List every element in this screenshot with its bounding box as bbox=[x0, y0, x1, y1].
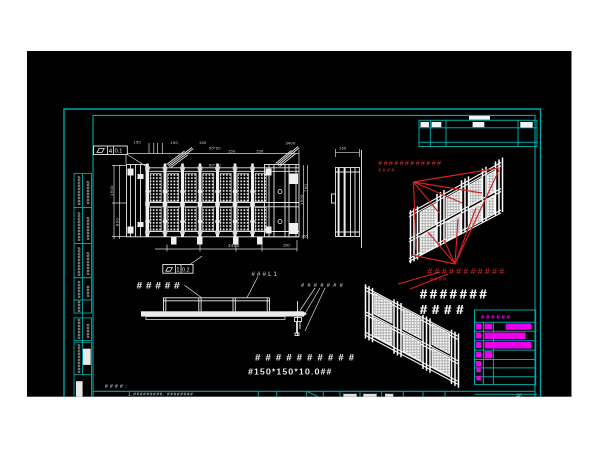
svg-text:####: #### bbox=[76, 300, 82, 312]
svg-text:50*50: 50*50 bbox=[209, 163, 221, 168]
svg-text:1600: 1600 bbox=[299, 194, 304, 205]
svg-text:#####: ##### bbox=[137, 281, 184, 292]
svg-text:##########: ########## bbox=[76, 344, 82, 373]
svg-text:####: #### bbox=[420, 302, 469, 317]
svg-text:50*50: 50*50 bbox=[209, 145, 221, 150]
svg-text:46: 46 bbox=[516, 394, 522, 400]
svg-text:150: 150 bbox=[171, 140, 179, 145]
svg-text:##########: ########## bbox=[76, 176, 82, 205]
svg-text:1600: 1600 bbox=[109, 185, 114, 196]
svg-text:#150*150*10.0##: #150*150*10.0## bbox=[249, 368, 333, 377]
svg-text:############: ############ bbox=[378, 160, 442, 167]
svg-text:##########: ########## bbox=[76, 247, 82, 276]
svg-text:##########: ########## bbox=[76, 212, 82, 241]
svg-text:3400: 3400 bbox=[228, 243, 240, 248]
svg-text:150: 150 bbox=[283, 243, 290, 248]
svg-text:########: ######## bbox=[85, 252, 91, 275]
svg-text:160: 160 bbox=[339, 146, 347, 151]
svg-text:####: #### bbox=[430, 277, 447, 283]
svg-text:########: ######## bbox=[85, 217, 91, 240]
svg-text:###########: ########### bbox=[428, 266, 507, 276]
svg-text:######: ###### bbox=[76, 280, 82, 298]
svg-text:150: 150 bbox=[134, 140, 142, 145]
svg-text:800: 800 bbox=[115, 218, 120, 226]
svg-text:150: 150 bbox=[199, 140, 207, 145]
svg-text:760: 760 bbox=[303, 184, 308, 192]
svg-text:####: #### bbox=[85, 285, 91, 297]
svg-text:0.2: 0.2 bbox=[182, 267, 190, 273]
svg-text:150: 150 bbox=[256, 149, 264, 154]
svg-text:0.1: 0.1 bbox=[115, 149, 123, 155]
svg-text:########: ######## bbox=[85, 181, 91, 204]
svg-text:####: #### bbox=[105, 384, 125, 390]
svg-text:#####: ##### bbox=[85, 323, 91, 338]
svg-text:#######: ####### bbox=[301, 283, 346, 289]
svg-text:######: ###### bbox=[481, 315, 512, 321]
svg-text:####: #### bbox=[378, 168, 395, 174]
svg-text:1.#########. ########: 1.#########. ######## bbox=[128, 392, 194, 397]
svg-text:150: 150 bbox=[228, 149, 236, 154]
svg-text:4: 4 bbox=[109, 148, 113, 155]
svg-text:#######: ####### bbox=[76, 318, 82, 339]
svg-text:3400: 3400 bbox=[286, 141, 297, 146]
svg-text::: : bbox=[126, 384, 127, 390]
svg-text:###L1: ###L1 bbox=[252, 272, 280, 278]
svg-text:##########: ########## bbox=[256, 353, 360, 363]
svg-text:#######: ####### bbox=[420, 287, 490, 302]
